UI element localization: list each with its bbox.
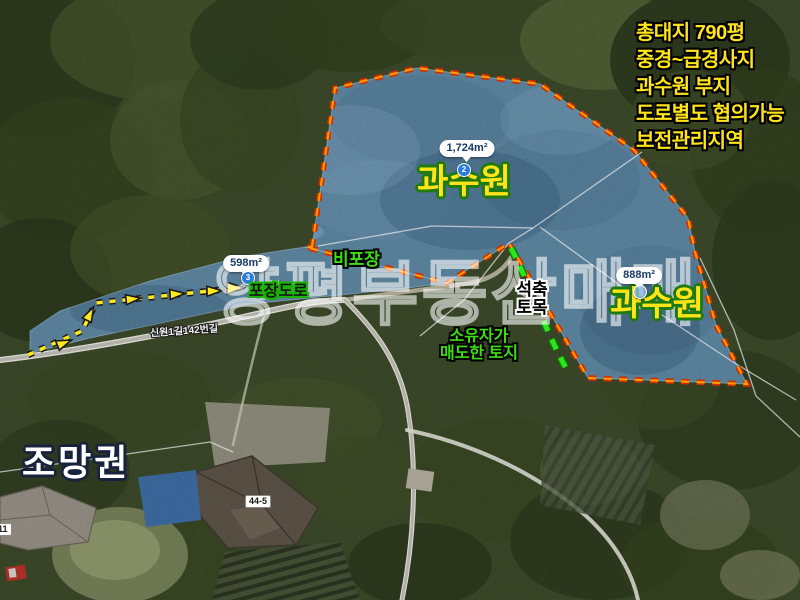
area-marker-2: 2 — [457, 163, 471, 177]
owner-note-line-2: 매도한 토지 — [440, 346, 518, 363]
owner-note-line-1: 소유자가 — [440, 329, 518, 346]
area-bubble-888: 888m² — [616, 267, 662, 284]
building-number-tag: 44-5 — [245, 495, 271, 508]
area-bubble-1724: 1,724m² — [440, 140, 495, 157]
area-bubble-598: 598m² — [223, 255, 269, 272]
satellite-map[interactable]: 양평부동산매매 총대지 790평 중경~급경사지 과수원 부지 도로별도 협의가… — [0, 0, 800, 600]
listing-info-block: 총대지 790평 중경~급경사지 과수원 부지 도로별도 협의가능 보전관리지역 — [636, 20, 784, 155]
info-line-zoning: 보전관리지역 — [636, 128, 784, 155]
area-marker-888 — [633, 285, 647, 299]
stonework-note: 석축 토목 — [516, 281, 547, 317]
info-line-use: 과수원 부지 — [636, 74, 784, 101]
paved-road-note: 포장도로 — [249, 284, 308, 301]
stonework-line-1: 석축 — [516, 281, 547, 299]
building-number-partial-tag: 11 — [0, 523, 12, 536]
orchard-label-east: 과수원 — [610, 287, 704, 323]
owner-sold-note: 소유자가 매도한 토지 — [440, 329, 518, 363]
stonework-line-2: 토목 — [516, 299, 547, 317]
unpaved-road-note: 비포장 — [333, 251, 380, 269]
info-line-total-area: 총대지 790평 — [636, 20, 784, 47]
info-line-slope: 중경~급경사지 — [636, 47, 784, 74]
info-line-road: 도로별도 협의가능 — [636, 101, 784, 128]
view-right-label: 조망권 — [22, 444, 130, 482]
